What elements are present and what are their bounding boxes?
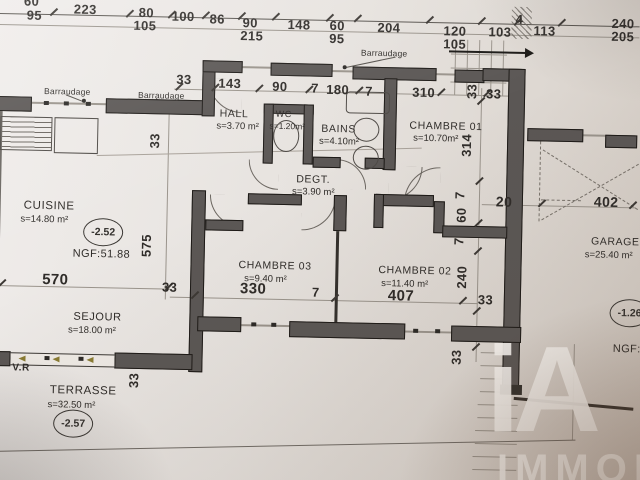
window: [435, 73, 457, 75]
floor-plan: 60 95 223 80 105 100 86 90 215 148 60 95…: [0, 0, 640, 480]
dim-label: 33: [464, 84, 479, 100]
ext-step: [475, 430, 517, 432]
dim-label: 204: [377, 20, 400, 35]
dim-label: 575: [139, 234, 154, 257]
leader-dot: [343, 65, 347, 69]
wall: [203, 60, 243, 73]
room-area: s=14.80 m²: [20, 213, 68, 225]
door-arc: [248, 159, 279, 190]
terrace-edge-right: [572, 344, 575, 440]
dim-label: 33: [162, 279, 178, 294]
bay-joint: [78, 357, 83, 361]
room-label: SEJOUR: [73, 311, 121, 324]
level-marker: -2.57: [53, 409, 94, 438]
dashed-line: [538, 141, 541, 221]
room-label: CUISINE: [24, 200, 75, 213]
dashed-diagonal: [541, 164, 639, 221]
window: [242, 66, 272, 69]
dim-label: 33: [147, 133, 162, 149]
wall: [376, 194, 434, 207]
room-label: CHAMBRE 01: [409, 120, 482, 134]
window-marker: [86, 102, 91, 106]
room-area: s=3.70 m²: [216, 121, 259, 133]
room-area: s=18.00 m²: [68, 324, 116, 336]
room-label: CHAMBRE 03: [238, 259, 311, 273]
barraudage-label: Barraudage: [44, 86, 91, 97]
wall: [373, 194, 384, 228]
window: [403, 331, 453, 334]
dim-label: 402: [594, 193, 619, 210]
ext-step: [477, 417, 517, 419]
window: [331, 70, 355, 73]
dim-label: 33: [449, 349, 464, 365]
dim-label: 7: [365, 84, 373, 99]
dim-label: 570: [42, 271, 69, 289]
wall: [106, 98, 210, 115]
window-marker: [435, 329, 440, 333]
dim-label: 33: [478, 292, 494, 307]
bay-arrow: [18, 355, 25, 361]
room-area: s=4.10m²: [319, 136, 359, 148]
wall: [197, 316, 241, 332]
dim-label: 33: [486, 86, 502, 101]
dim-label: 314: [459, 134, 474, 157]
bay-joint: [44, 356, 49, 360]
dim-label: 90: [272, 79, 288, 94]
wall-wc: [303, 104, 314, 164]
terrace-boundary: [0, 440, 575, 452]
room-area: s=11.40 m²: [381, 278, 428, 290]
dashed-diagonal: [543, 149, 638, 210]
wall-garage: [605, 135, 637, 149]
room-area: s=1.20m²: [269, 121, 305, 132]
ext-step: [475, 443, 517, 445]
dim-label: 113: [533, 23, 555, 38]
dim-line-left-v: [165, 100, 170, 300]
ext-step: [478, 404, 518, 406]
dim-label: 407: [388, 287, 415, 305]
bay-arrow: [86, 357, 93, 363]
room-label: HALL: [220, 108, 249, 121]
wall: [0, 96, 32, 112]
wall: [188, 190, 206, 372]
dim-label: 20: [496, 193, 513, 209]
ext-step: [473, 456, 517, 458]
room-area: s=25.40 m²: [585, 249, 633, 261]
wall: [313, 157, 341, 169]
room-label: BAINS: [321, 123, 356, 136]
dim-label: 95: [27, 8, 43, 23]
dim-label: 103: [488, 24, 511, 39]
bay-arrow: [52, 356, 59, 362]
leader-dot: [82, 99, 86, 103]
wall-wc: [263, 104, 274, 164]
dim-label: 105: [443, 36, 466, 51]
dim-label: 148: [287, 17, 310, 32]
window-marker: [64, 101, 69, 105]
ext-step: [472, 469, 516, 471]
room-label: DEGT.: [296, 173, 330, 186]
dim-label: 33: [176, 72, 192, 87]
wall: [114, 352, 192, 370]
ngf-label: NGF:53: [613, 343, 640, 356]
wall-thin: [334, 231, 339, 323]
wall: [454, 70, 484, 84]
entry-arrow-head: [525, 48, 534, 58]
door-arc: [301, 196, 336, 231]
kitchen-drainer: [0, 116, 53, 151]
dim-label: 7: [312, 285, 320, 300]
dim-label: 4: [516, 12, 524, 27]
dim-label: 105: [133, 18, 156, 33]
room-label: GARAGE: [591, 235, 640, 248]
wall-cap: [500, 385, 522, 395]
dim-label: 86: [209, 11, 225, 26]
room-area: s=3.90 m²: [292, 186, 335, 198]
wall: [270, 63, 332, 77]
room-label: TERRASSE: [50, 384, 117, 397]
barraudage-label: Barraudage: [138, 90, 185, 101]
dim-label: 100: [172, 9, 195, 24]
kitchen-sink: [54, 117, 99, 154]
dim-label: 60: [454, 207, 469, 223]
ngf-label: NGF:51.88: [73, 248, 131, 261]
vr-label: V.R: [12, 362, 30, 373]
window-marker: [251, 322, 256, 326]
barraudage-label: Barraudage: [361, 48, 408, 59]
dim-label: 95: [329, 31, 345, 46]
dim-label: 240: [454, 266, 469, 289]
dim-label: 180: [326, 82, 349, 97]
wall: [205, 219, 243, 231]
room-area: s=9.40 m²: [244, 273, 287, 285]
level-marker: -1.26: [609, 299, 640, 328]
window-marker: [44, 101, 49, 105]
dim-label: 223: [74, 2, 97, 17]
window-marker: [413, 329, 418, 333]
dim-label: 205: [611, 29, 634, 44]
room-label: WC: [276, 109, 292, 119]
dim-label: 7: [451, 237, 466, 245]
dim-line-570: [0, 285, 170, 290]
window-marker: [271, 323, 276, 327]
dim-label: 7: [452, 191, 467, 199]
room-label: CHAMBRE 02: [378, 264, 451, 278]
wall-garage: [527, 128, 583, 142]
dim-label: 310: [412, 85, 435, 100]
dim-label: 143: [218, 76, 241, 91]
dim-label: 33: [126, 373, 141, 389]
wall: [451, 326, 521, 343]
dim-label: 7: [311, 81, 319, 96]
wall: [289, 321, 405, 339]
floor-plan-photo: 60 95 223 80 105 100 86 90 215 148 60 95…: [0, 0, 640, 480]
dim-line-330: [170, 297, 478, 304]
wall: [0, 351, 11, 366]
level-marker: -2.52: [83, 218, 124, 247]
dim-label: 215: [240, 28, 263, 43]
room-area: s=10.70m²: [413, 133, 458, 145]
window: [239, 324, 291, 327]
wall: [333, 195, 347, 231]
